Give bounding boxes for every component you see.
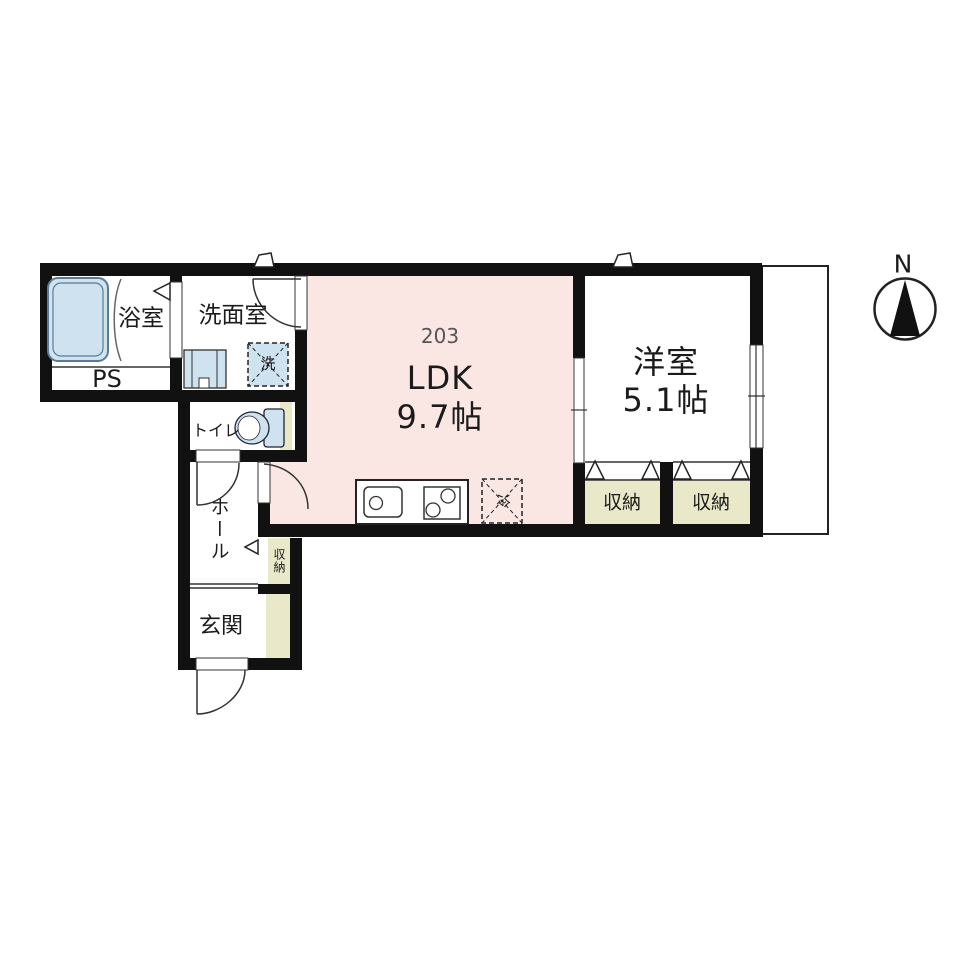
room-floors <box>266 276 750 658</box>
bathtub <box>48 278 121 361</box>
entrance-door-opening <box>196 658 248 670</box>
kitchen-counter <box>356 480 468 524</box>
sink-faucet <box>199 378 209 388</box>
washroom-sink <box>184 350 226 388</box>
vent-western <box>613 253 633 267</box>
toilet-door-opening <box>196 450 240 462</box>
wall-ldk-western-upper <box>573 276 585 358</box>
western-room-label: 洋室 <box>633 346 699 378</box>
wall-lower-right <box>290 538 302 670</box>
compass <box>875 279 936 340</box>
wall-upper-block-bottom <box>40 390 307 402</box>
wall-top <box>40 263 762 276</box>
entrance-door-arc <box>197 670 245 714</box>
stove-burner-2 <box>426 503 440 517</box>
floor-plan-page: 浴室 洗面室 PS トイレ ホール 収納 玄関 203 LDK 9.7帖 洋室 … <box>0 0 960 960</box>
toilet-label: トイレ <box>192 423 240 439</box>
western-room-size-label: 5.1帖 <box>623 384 710 416</box>
closet-left-label: 収納 <box>603 494 641 513</box>
ldk-door-opening <box>258 462 270 503</box>
entrance-label: 玄関 <box>199 616 243 638</box>
fold-mark-4 <box>732 461 749 479</box>
wall-ldk-western-lower <box>573 463 585 524</box>
bathroom-door-opening <box>170 282 182 358</box>
wall-western-right-lower <box>750 448 763 537</box>
wall-western-right-upper <box>750 266 763 345</box>
washroom-door-opening <box>295 276 307 330</box>
washroom-label: 洗面室 <box>199 305 268 328</box>
toilet-seat <box>238 416 260 440</box>
wall-hall-right <box>258 503 270 526</box>
wall-left-lower <box>178 390 190 670</box>
fold-mark-1 <box>586 461 604 479</box>
kitchen-sink-drain <box>370 497 383 510</box>
fold-mark-2 <box>642 461 659 479</box>
balcony-outline <box>758 266 828 534</box>
wall-ldk-bottom <box>258 524 762 537</box>
fold-mark-3 <box>674 461 691 479</box>
unit-number: 203 <box>421 326 459 346</box>
pipe-space-label: PS <box>92 367 122 391</box>
wall-under-hall-closet <box>258 584 302 594</box>
stove-burner-1 <box>441 489 455 503</box>
bathtub-outer <box>48 278 108 361</box>
compass-north-label: N <box>894 252 913 277</box>
bathroom-label: 浴室 <box>118 308 164 331</box>
toilet-fixture <box>235 409 284 447</box>
closet-right-label: 収納 <box>692 494 730 513</box>
floor-plan-drawing <box>0 0 960 960</box>
hall-closet-door-marker <box>245 540 258 554</box>
hall-label: ホール <box>209 497 228 563</box>
vent-washroom <box>254 253 274 267</box>
hall-closet-label: 収納 <box>273 548 285 574</box>
entrance-side-strip <box>266 594 290 658</box>
refrigerator-label: 冷 <box>495 494 509 508</box>
wall-closet-divider <box>660 462 673 524</box>
ldk-size-label: 9.7帖 <box>397 401 484 433</box>
bathroom-door-marker <box>154 283 170 300</box>
washer-label: 洗 <box>260 357 275 372</box>
ldk-label: LDK <box>407 362 473 394</box>
